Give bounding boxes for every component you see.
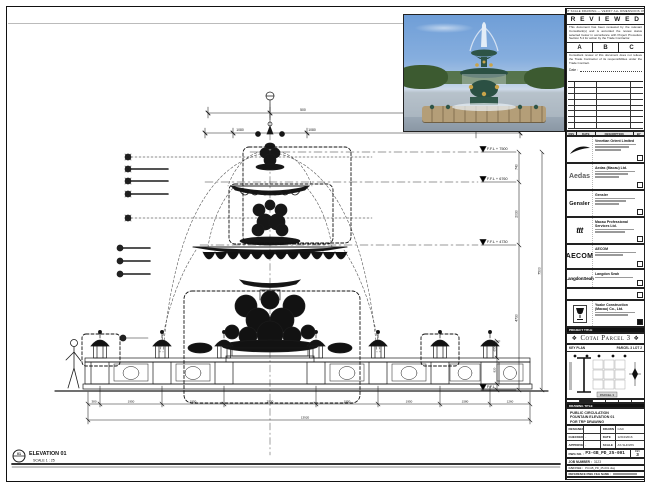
key-plan-map: PARCEL 3 bbox=[567, 352, 644, 399]
wall-medallions bbox=[114, 364, 523, 381]
reviewed-paragraph-2: Consultant review of this document does … bbox=[567, 53, 644, 66]
key-plan-label: KEY PLAN bbox=[569, 346, 585, 350]
svg-text:2030: 2030 bbox=[515, 210, 519, 218]
project-title: ❖ Cotai Parcel 3 ❖ bbox=[566, 333, 645, 344]
date-line: Date : bbox=[567, 66, 644, 73]
view-title bbox=[12, 450, 560, 467]
consultant-row-gensler: Gensler Gensler bbox=[566, 190, 645, 217]
scale-figure bbox=[66, 340, 81, 389]
svg-text:F.F.L: F.F.L bbox=[487, 385, 495, 389]
svg-text:13920: 13920 bbox=[301, 416, 310, 420]
vertical-dimensions bbox=[490, 150, 544, 392]
svg-text:1950: 1950 bbox=[128, 400, 135, 404]
contractor-row: Yuake Construction (Macau) Co., Ltd. bbox=[566, 300, 645, 327]
drawing-sheet: 500 1080 1080 bbox=[0, 0, 650, 488]
consultant-checkbox[interactable] bbox=[637, 292, 643, 298]
scale-value: AS SHOWN bbox=[616, 441, 644, 448]
mps-logo: ttt bbox=[567, 218, 593, 243]
contractor-checkbox[interactable] bbox=[637, 319, 643, 325]
date-label: DATE bbox=[601, 434, 616, 441]
svg-text:SCALE 1 : 25: SCALE 1 : 25 bbox=[33, 459, 55, 463]
consultant-name: Langdon Seah bbox=[595, 272, 642, 276]
svg-text:380: 380 bbox=[91, 400, 96, 404]
ref-file-label: REFERENCE DWG FILE NAME : bbox=[569, 472, 611, 476]
consultant-name: Venetian Orient Limited bbox=[595, 139, 642, 143]
consultant-row-aedas: Aedas Aedas (Macau) Ltd. bbox=[566, 163, 645, 190]
aedas-logo: Aedas bbox=[567, 164, 593, 189]
svg-text:2900: 2900 bbox=[267, 400, 274, 404]
reviewed-paragraph-1: This document has been reviewed by the r… bbox=[567, 25, 644, 42]
level-lines bbox=[200, 152, 478, 245]
cad-file-value: P3-GB_PD_25-001.dwg bbox=[585, 466, 615, 470]
svg-text:1080: 1080 bbox=[236, 128, 244, 132]
svg-text:1080: 1080 bbox=[308, 128, 316, 132]
top-dimension-values: 500 1080 1080 bbox=[236, 108, 316, 132]
svg-text:820: 820 bbox=[493, 367, 497, 372]
info-table: DESIGNED DRAWN CAD CHECKED - DATE 12/04/… bbox=[566, 425, 645, 449]
consultant-checkbox[interactable] bbox=[637, 155, 643, 161]
consultant-name: Gensler bbox=[595, 193, 642, 197]
svg-text:01: 01 bbox=[17, 452, 21, 456]
project-title-text: Cotai Parcel 3 bbox=[580, 335, 630, 342]
bottom-dimension-values: 380 1950 1950 2900 1950 1950 1580 1260 1… bbox=[91, 400, 513, 420]
status-option-c[interactable]: C bbox=[619, 43, 644, 52]
key-plan: KEY PLAN PARCEL 3 LOT 2 PARCEL bbox=[566, 344, 645, 399]
svg-text:1950: 1950 bbox=[190, 400, 197, 404]
level-markers bbox=[480, 147, 516, 391]
svg-text:F.F.L + 6760: F.F.L + 6760 bbox=[487, 177, 508, 181]
job-value: 3123 bbox=[594, 460, 601, 464]
date-col-header: DATE bbox=[577, 132, 596, 135]
svg-text:7500: 7500 bbox=[538, 267, 542, 275]
rev-box: REV 3 bbox=[630, 450, 644, 457]
venetian-swoosh-logo bbox=[567, 137, 593, 162]
svg-text:500: 500 bbox=[300, 108, 306, 112]
date-fill-line[interactable] bbox=[580, 68, 642, 72]
review-status-options: A B C bbox=[567, 42, 644, 53]
consultant-checkbox[interactable] bbox=[637, 182, 643, 188]
title-block-panel: DO NOT SCALE DRAWING — VERIFY ALL DIMENS… bbox=[565, 8, 645, 480]
detail-callout-boxes bbox=[82, 147, 459, 403]
job-label: JOB NUMBER : bbox=[569, 460, 592, 464]
designed-value bbox=[584, 426, 601, 433]
status-option-b[interactable]: B bbox=[593, 43, 619, 52]
gensler-logo: Gensler bbox=[567, 191, 593, 216]
key-plan-parcel-label: PARCEL 3 LOT 2 bbox=[617, 346, 642, 350]
svg-text:ELEVATION 01: ELEVATION 01 bbox=[29, 451, 67, 457]
top-finial bbox=[256, 122, 285, 170]
consultant-name: Aedas (Macau) Ltd. bbox=[595, 166, 642, 170]
status-option-a[interactable]: A bbox=[567, 43, 593, 52]
by-col-header: BY bbox=[634, 132, 644, 135]
empty-consultant-box bbox=[566, 288, 645, 300]
ref-file-bar bbox=[613, 473, 637, 475]
aecom-logo: AECOM bbox=[567, 245, 593, 268]
consultant-checkbox[interactable] bbox=[637, 280, 643, 286]
reviewed-stamp: R E V I E W E D This document has been r… bbox=[566, 14, 645, 131]
panel-bottom-strip bbox=[566, 477, 645, 480]
svg-text:1950: 1950 bbox=[344, 400, 351, 404]
svg-text:F.F.L + 4730: F.F.L + 4730 bbox=[487, 240, 508, 244]
consultant-name: AECOM bbox=[595, 247, 642, 251]
contractor-name: Yuake Construction (Macau) Co., Ltd. bbox=[595, 303, 642, 311]
contractor-goblet-logo bbox=[567, 301, 593, 326]
svg-text:1950: 1950 bbox=[406, 400, 413, 404]
svg-text:PARCEL 3: PARCEL 3 bbox=[600, 393, 615, 397]
designed-label: DESIGNED bbox=[567, 426, 584, 433]
consultant-row-venetian: Venetian Orient Limited bbox=[566, 136, 645, 163]
ornament-icon: ❖ bbox=[634, 336, 640, 342]
consultant-checkbox[interactable] bbox=[637, 209, 643, 215]
job-number-row: JOB NUMBER : 3123 bbox=[566, 458, 645, 465]
description-col-header: DESCRIPTION bbox=[596, 132, 634, 135]
date-value: 12/04/2016 bbox=[616, 434, 644, 441]
consultant-checkbox[interactable] bbox=[637, 261, 643, 267]
reference-photo bbox=[403, 14, 565, 132]
checked-label: CHECKED bbox=[567, 434, 584, 441]
svg-text:740: 740 bbox=[515, 164, 519, 170]
checked-value: - bbox=[584, 434, 601, 441]
approved-label: APPROVED bbox=[567, 441, 584, 448]
svg-text:1260: 1260 bbox=[507, 400, 514, 404]
consultant-checkbox[interactable] bbox=[637, 236, 643, 242]
svg-text:1580: 1580 bbox=[462, 400, 469, 404]
upper-figures bbox=[240, 200, 300, 245]
level-labels: F.F.L + 7500 F.F.L + 6760 F.F.L + 4730 F… bbox=[487, 147, 508, 389]
svg-text:4730: 4730 bbox=[515, 314, 519, 322]
ornament-icon: ❖ bbox=[572, 336, 578, 342]
date-label: Date : bbox=[569, 68, 578, 72]
consultant-name: Macau Professional Services Ltd. bbox=[595, 220, 642, 228]
reviewed-title: R E V I E W E D bbox=[567, 15, 644, 25]
langdonseah-logo: LangdonSeah bbox=[567, 270, 593, 287]
svg-text:650: 650 bbox=[493, 346, 497, 351]
pool-wall bbox=[55, 348, 548, 391]
photo-fountain-silhouette bbox=[404, 15, 564, 131]
revision-grid bbox=[568, 81, 643, 129]
dwg-number-row: DWG NO. : P3-GB_PD_25-001 REV 3 bbox=[566, 449, 645, 458]
rev-col-header: REV bbox=[567, 132, 577, 135]
drawing-title: PUBLIC CIRCULATION FOUNTAIN ELEVATION 01… bbox=[566, 408, 645, 425]
consultant-row-langdonseah: LangdonSeah Langdon Seah bbox=[566, 269, 645, 288]
consultant-row-mps: ttt Macau Professional Services Ltd. bbox=[566, 217, 645, 244]
scale-label: SCALE bbox=[601, 441, 616, 448]
rev-value: 3 bbox=[636, 453, 639, 458]
drawn-label: DRAWN bbox=[601, 426, 616, 433]
consultant-row-aecom: AECOM AECOM bbox=[566, 244, 645, 269]
sheet-note-text: DO NOT SCALE DRAWING — VERIFY ALL DIMENS… bbox=[566, 9, 645, 13]
lower-figures bbox=[188, 291, 352, 353]
drawn-value: CAD bbox=[616, 426, 644, 433]
dwg-no-label: DWG NO. : bbox=[567, 452, 585, 456]
dwg-no-value: P3-GB_PD_25-001 bbox=[585, 451, 630, 456]
svg-text:F.F.L + 7500: F.F.L + 7500 bbox=[487, 147, 508, 151]
approved-value: - bbox=[584, 441, 601, 448]
cad-file-label: CAD FILE : bbox=[569, 466, 584, 470]
